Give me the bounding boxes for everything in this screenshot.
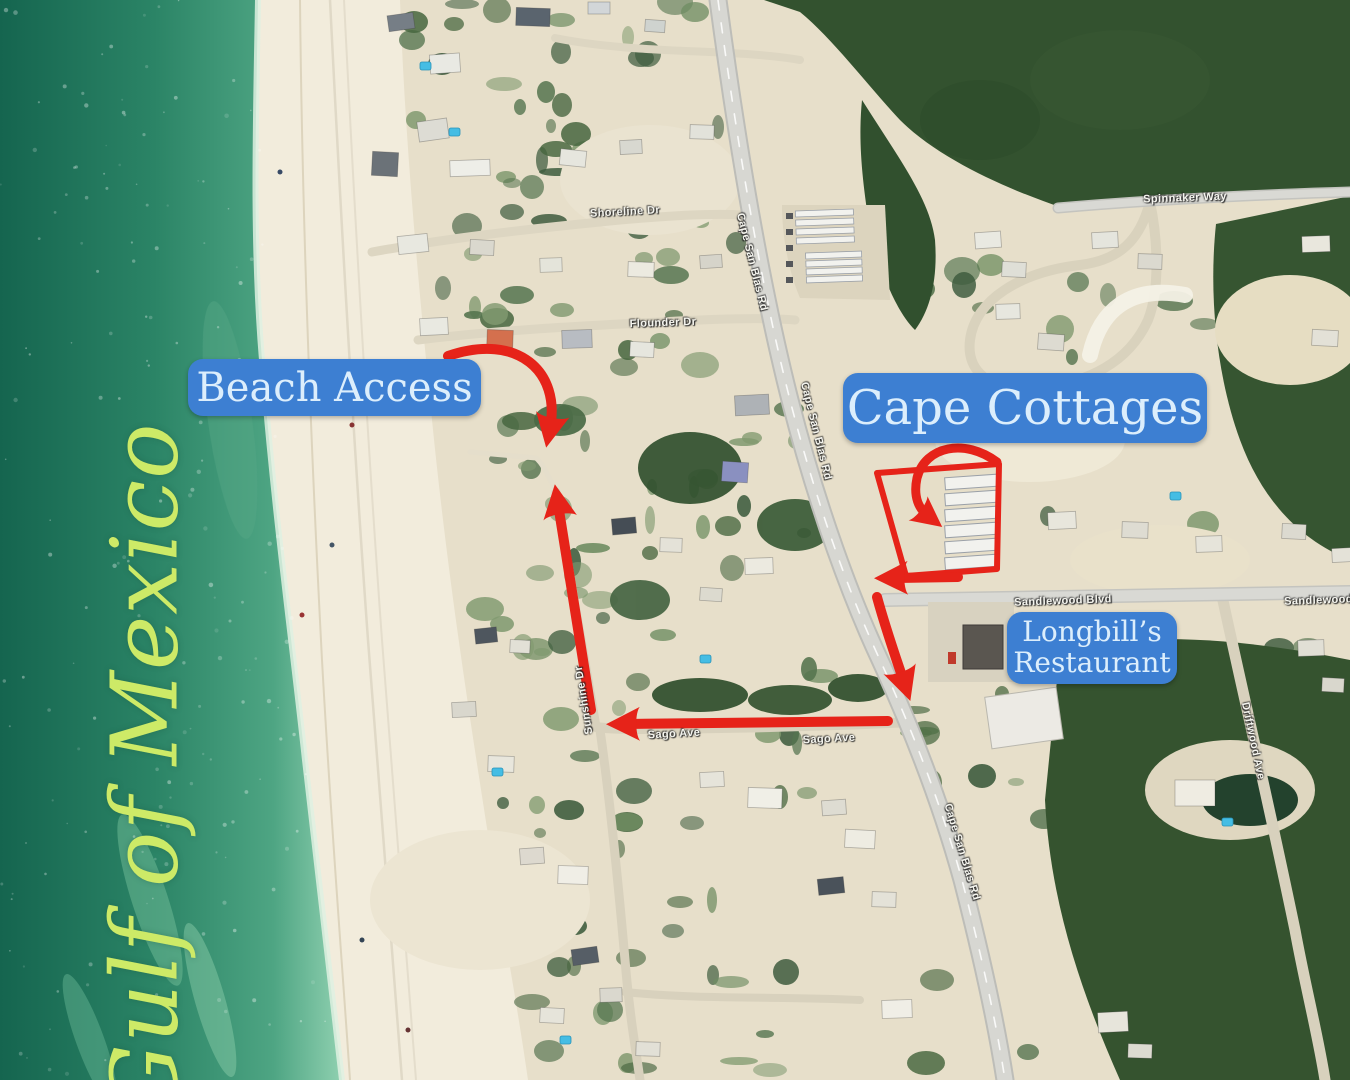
speckle bbox=[148, 364, 150, 366]
speckle bbox=[311, 980, 315, 984]
speckle bbox=[231, 820, 234, 823]
building bbox=[645, 19, 666, 32]
shrub bbox=[977, 254, 1005, 276]
speckle bbox=[85, 606, 88, 609]
shrub bbox=[773, 959, 799, 985]
shrub bbox=[681, 2, 709, 22]
speckle bbox=[99, 396, 103, 400]
shrub bbox=[534, 828, 546, 838]
shrub bbox=[464, 311, 484, 319]
speckle bbox=[255, 657, 258, 660]
building bbox=[571, 946, 599, 965]
building bbox=[817, 877, 845, 896]
speckle bbox=[324, 1021, 326, 1023]
building bbox=[1128, 1044, 1152, 1059]
umbrella bbox=[278, 170, 283, 175]
shrub bbox=[642, 546, 658, 560]
shrub bbox=[554, 800, 584, 820]
shrub bbox=[534, 648, 550, 656]
speckle bbox=[218, 656, 222, 660]
shrub bbox=[616, 778, 652, 804]
speckle bbox=[49, 1028, 51, 1030]
building bbox=[588, 2, 610, 14]
speckle bbox=[264, 571, 266, 573]
pool bbox=[449, 128, 460, 136]
shrub bbox=[518, 461, 536, 471]
building bbox=[1002, 261, 1027, 277]
speckle bbox=[274, 435, 277, 438]
speckle bbox=[101, 53, 103, 55]
speckle bbox=[25, 842, 27, 844]
shrub bbox=[720, 1057, 758, 1065]
building bbox=[1138, 254, 1163, 270]
shrub bbox=[1017, 1044, 1039, 1060]
building bbox=[417, 118, 449, 142]
shrub bbox=[801, 657, 817, 681]
speckle bbox=[65, 193, 68, 196]
shrub bbox=[435, 276, 451, 300]
speckle bbox=[146, 360, 148, 362]
building bbox=[519, 847, 544, 865]
speckle bbox=[146, 204, 149, 207]
speckle bbox=[268, 542, 272, 546]
speckle bbox=[203, 242, 205, 244]
speckle bbox=[103, 173, 105, 175]
speckle bbox=[38, 101, 40, 103]
speckle bbox=[199, 421, 203, 425]
building bbox=[872, 892, 897, 908]
speckle bbox=[122, 111, 126, 115]
shrub bbox=[534, 1040, 564, 1062]
building bbox=[1312, 329, 1339, 346]
building bbox=[1302, 236, 1331, 253]
building bbox=[540, 258, 562, 273]
shrub bbox=[681, 352, 719, 378]
speckle bbox=[121, 99, 123, 101]
shrub bbox=[968, 764, 996, 788]
speckle bbox=[224, 1010, 228, 1014]
shrub bbox=[444, 17, 464, 31]
speckle bbox=[277, 707, 279, 709]
speckle bbox=[105, 145, 107, 147]
speckle bbox=[54, 211, 57, 214]
speckle bbox=[143, 14, 146, 17]
shrub bbox=[500, 204, 524, 220]
speckle bbox=[52, 799, 54, 801]
shrub bbox=[580, 430, 590, 452]
speckle bbox=[279, 737, 282, 740]
rv-storage-lot bbox=[782, 205, 890, 300]
speckle bbox=[241, 700, 244, 703]
speckle bbox=[225, 857, 227, 859]
speckle bbox=[23, 965, 25, 967]
speckle bbox=[258, 149, 261, 152]
speckle bbox=[9, 725, 11, 727]
building bbox=[600, 988, 622, 1003]
speckle bbox=[198, 705, 201, 708]
umbrella bbox=[300, 613, 305, 618]
speckle bbox=[158, 5, 161, 8]
building bbox=[996, 304, 1021, 320]
shrub bbox=[650, 629, 676, 641]
speckle bbox=[296, 830, 299, 833]
speckle bbox=[48, 553, 52, 557]
shrub bbox=[550, 303, 574, 317]
shrub bbox=[547, 13, 575, 27]
speckle bbox=[252, 998, 256, 1002]
shrub bbox=[737, 495, 751, 517]
speckle bbox=[22, 676, 25, 679]
building bbox=[387, 12, 415, 31]
shrub bbox=[548, 630, 576, 654]
speckle bbox=[49, 519, 51, 521]
speckle bbox=[201, 460, 203, 462]
speckle bbox=[0, 883, 3, 886]
speckle bbox=[65, 1072, 69, 1076]
speckle bbox=[285, 640, 289, 644]
building bbox=[700, 771, 725, 787]
speckle bbox=[25, 347, 27, 349]
storage-bin bbox=[786, 245, 793, 251]
shrub bbox=[713, 976, 749, 988]
speckle bbox=[9, 950, 11, 952]
speckle bbox=[214, 597, 216, 599]
speckle bbox=[202, 180, 204, 182]
speckle bbox=[305, 773, 307, 775]
speckle bbox=[222, 901, 226, 905]
speckle bbox=[223, 823, 227, 827]
shrub bbox=[680, 816, 704, 830]
speckle bbox=[300, 1020, 302, 1022]
longbills-line2: Restaurant bbox=[1013, 648, 1170, 679]
building bbox=[660, 538, 682, 553]
speckle bbox=[163, 111, 165, 113]
speckle bbox=[118, 164, 121, 167]
shrub bbox=[610, 358, 638, 376]
speckle bbox=[149, 316, 153, 320]
building bbox=[628, 262, 655, 278]
building bbox=[470, 239, 495, 255]
shrub bbox=[612, 700, 626, 716]
speckle bbox=[167, 204, 169, 206]
building bbox=[882, 999, 913, 1018]
building bbox=[1196, 536, 1223, 553]
longbills-restaurant-callout: Longbill’s Restaurant bbox=[1007, 612, 1177, 684]
speckle bbox=[272, 888, 276, 892]
speckle bbox=[261, 243, 263, 245]
shrub bbox=[466, 597, 504, 621]
speckle bbox=[109, 45, 113, 49]
speckle bbox=[285, 847, 289, 851]
building bbox=[1322, 677, 1345, 692]
building bbox=[1298, 640, 1325, 657]
shrub bbox=[543, 707, 579, 731]
building bbox=[690, 125, 714, 140]
speckle bbox=[268, 1023, 271, 1026]
speckle bbox=[249, 669, 251, 671]
speckle bbox=[63, 84, 67, 88]
speckle bbox=[202, 932, 206, 936]
shrub bbox=[907, 1051, 945, 1075]
storage-bin bbox=[786, 261, 793, 267]
speckle bbox=[5, 459, 7, 461]
speckle bbox=[202, 753, 204, 755]
shrub bbox=[742, 432, 762, 444]
pool bbox=[700, 655, 711, 663]
building bbox=[1037, 333, 1064, 351]
speckle bbox=[239, 281, 243, 285]
shrub bbox=[537, 81, 555, 103]
building bbox=[510, 639, 531, 653]
speckle bbox=[233, 929, 237, 933]
speckle bbox=[12, 893, 14, 895]
gulf-of-mexico-label: Gulf of Mexico bbox=[92, 422, 199, 1080]
speckle bbox=[48, 1068, 52, 1072]
speckle bbox=[276, 535, 280, 539]
building bbox=[558, 865, 589, 884]
shrub bbox=[503, 178, 521, 188]
shrub bbox=[645, 506, 655, 534]
building bbox=[1282, 523, 1307, 539]
building bbox=[1048, 511, 1077, 529]
speckle bbox=[224, 114, 229, 119]
speckle bbox=[13, 398, 17, 402]
building bbox=[611, 517, 636, 535]
speckle bbox=[84, 103, 88, 107]
speckle bbox=[267, 699, 271, 703]
speckle bbox=[281, 547, 284, 550]
shrub bbox=[720, 555, 744, 581]
umbrella bbox=[360, 938, 365, 943]
building bbox=[474, 627, 497, 644]
building bbox=[636, 1042, 660, 1057]
speckle bbox=[203, 526, 207, 530]
speckle bbox=[136, 184, 138, 186]
speckle bbox=[81, 92, 84, 95]
building bbox=[540, 1007, 565, 1023]
satellite-imagery bbox=[0, 0, 1350, 1080]
shrub bbox=[570, 750, 600, 762]
shrub bbox=[546, 119, 556, 133]
speckle bbox=[96, 270, 99, 273]
speckle bbox=[142, 133, 145, 136]
pool bbox=[420, 62, 431, 70]
building bbox=[745, 558, 774, 575]
shrub bbox=[486, 77, 522, 91]
map-flyer: Gulf of Mexico Beach Access Cape Cottage… bbox=[0, 0, 1350, 1080]
longbills-line1: Longbill’s bbox=[1022, 617, 1161, 648]
umbrella bbox=[330, 543, 335, 548]
speckle bbox=[33, 148, 37, 152]
building bbox=[1092, 231, 1119, 248]
speckle bbox=[210, 758, 212, 760]
speckle bbox=[26, 1057, 28, 1059]
speckle bbox=[217, 326, 219, 328]
speckle bbox=[241, 601, 244, 604]
shrub bbox=[667, 896, 693, 908]
shrub bbox=[552, 93, 572, 117]
shrub bbox=[526, 565, 554, 581]
shrub bbox=[1008, 778, 1024, 786]
storage-bin bbox=[786, 213, 793, 219]
building bbox=[700, 254, 723, 269]
speckle bbox=[290, 616, 294, 620]
speckle bbox=[71, 342, 73, 344]
speckle bbox=[85, 196, 89, 200]
building bbox=[562, 329, 593, 348]
building bbox=[620, 139, 643, 154]
speckle bbox=[209, 583, 214, 588]
speckle bbox=[236, 266, 238, 268]
speckle bbox=[228, 208, 230, 210]
speckle bbox=[215, 851, 217, 853]
shrub bbox=[952, 272, 976, 298]
speckle bbox=[29, 353, 31, 355]
speckle bbox=[217, 998, 221, 1002]
speckle bbox=[73, 166, 76, 169]
speckle bbox=[67, 823, 68, 824]
speckle bbox=[229, 620, 232, 623]
building bbox=[429, 53, 460, 74]
building bbox=[397, 233, 429, 254]
building bbox=[450, 159, 491, 176]
shrub bbox=[576, 543, 610, 553]
building bbox=[1122, 522, 1149, 539]
shrub bbox=[529, 796, 545, 814]
cape-cottages-callout: Cape Cottages bbox=[843, 373, 1207, 443]
speckle bbox=[197, 180, 199, 182]
speckle bbox=[109, 332, 113, 336]
speckle bbox=[47, 708, 51, 712]
shrub bbox=[756, 1030, 774, 1038]
speckle bbox=[145, 65, 148, 68]
speckle bbox=[174, 96, 178, 100]
speckle bbox=[259, 778, 261, 780]
building bbox=[516, 7, 551, 26]
building bbox=[845, 829, 876, 849]
building bbox=[822, 799, 847, 816]
building bbox=[371, 151, 398, 176]
shrub bbox=[656, 248, 680, 266]
shrub bbox=[1067, 272, 1089, 292]
shrub bbox=[534, 347, 556, 357]
umbrella bbox=[406, 1028, 411, 1033]
speckle bbox=[86, 983, 89, 986]
shrub bbox=[920, 969, 954, 991]
umbrella bbox=[350, 423, 355, 428]
shrub bbox=[792, 731, 802, 755]
arrow-lot-exit bbox=[894, 577, 958, 578]
road-label-flounder-dr: Flounder Dr bbox=[629, 316, 696, 330]
storage-bin bbox=[786, 229, 793, 235]
shrub bbox=[497, 797, 509, 809]
speckle bbox=[3, 679, 6, 682]
shrub bbox=[500, 286, 534, 304]
building bbox=[1332, 547, 1350, 562]
pool bbox=[492, 768, 503, 776]
speckle bbox=[132, 259, 135, 262]
shrub bbox=[596, 612, 610, 624]
shrub bbox=[662, 924, 684, 938]
building bbox=[734, 394, 769, 416]
speckle bbox=[232, 79, 235, 82]
shrub bbox=[482, 303, 508, 325]
building bbox=[1097, 1011, 1128, 1033]
beach-access-callout: Beach Access bbox=[188, 359, 481, 416]
arrow-sago-west bbox=[626, 721, 888, 724]
building bbox=[974, 231, 1001, 249]
speckle bbox=[250, 110, 252, 112]
speckle bbox=[11, 898, 13, 900]
speckle bbox=[292, 733, 295, 736]
speckle bbox=[84, 831, 87, 834]
building bbox=[559, 149, 587, 168]
speckle bbox=[176, 342, 179, 345]
shrub bbox=[797, 787, 817, 799]
shrub bbox=[1066, 349, 1078, 365]
building bbox=[630, 341, 655, 357]
speckle bbox=[245, 790, 249, 794]
speckle bbox=[80, 242, 83, 245]
shrub bbox=[399, 30, 425, 50]
pool bbox=[1170, 492, 1181, 500]
speckle bbox=[105, 187, 108, 190]
shrub bbox=[514, 99, 526, 115]
speckle bbox=[4, 8, 8, 12]
speckle bbox=[250, 257, 254, 261]
pool bbox=[560, 1036, 571, 1044]
shrub bbox=[626, 673, 650, 691]
speckle bbox=[57, 990, 60, 993]
shrub bbox=[653, 266, 689, 284]
speckle bbox=[44, 873, 47, 876]
building bbox=[1175, 780, 1215, 806]
shrub bbox=[696, 515, 710, 539]
shrub bbox=[715, 516, 741, 536]
speckle bbox=[118, 397, 121, 400]
shrub bbox=[520, 175, 544, 199]
speckle bbox=[38, 237, 41, 240]
speckle bbox=[73, 663, 75, 665]
speckle bbox=[245, 669, 247, 671]
road-label-sandlewood-2: Sandlewood Blvd bbox=[1284, 592, 1350, 607]
shrub bbox=[707, 887, 717, 913]
building bbox=[700, 587, 723, 602]
pool bbox=[1222, 818, 1233, 826]
speckle bbox=[131, 241, 133, 243]
storage-bin bbox=[786, 277, 793, 283]
speckle bbox=[214, 628, 218, 632]
speckle bbox=[77, 747, 80, 750]
building bbox=[721, 461, 748, 483]
building bbox=[452, 701, 477, 717]
speckle bbox=[19, 1052, 23, 1056]
shrub bbox=[753, 1063, 787, 1077]
speckle bbox=[13, 10, 18, 15]
speckle bbox=[145, 316, 147, 318]
building bbox=[420, 317, 449, 335]
building bbox=[748, 787, 783, 808]
speckle bbox=[155, 246, 159, 250]
shrub bbox=[1190, 318, 1218, 330]
